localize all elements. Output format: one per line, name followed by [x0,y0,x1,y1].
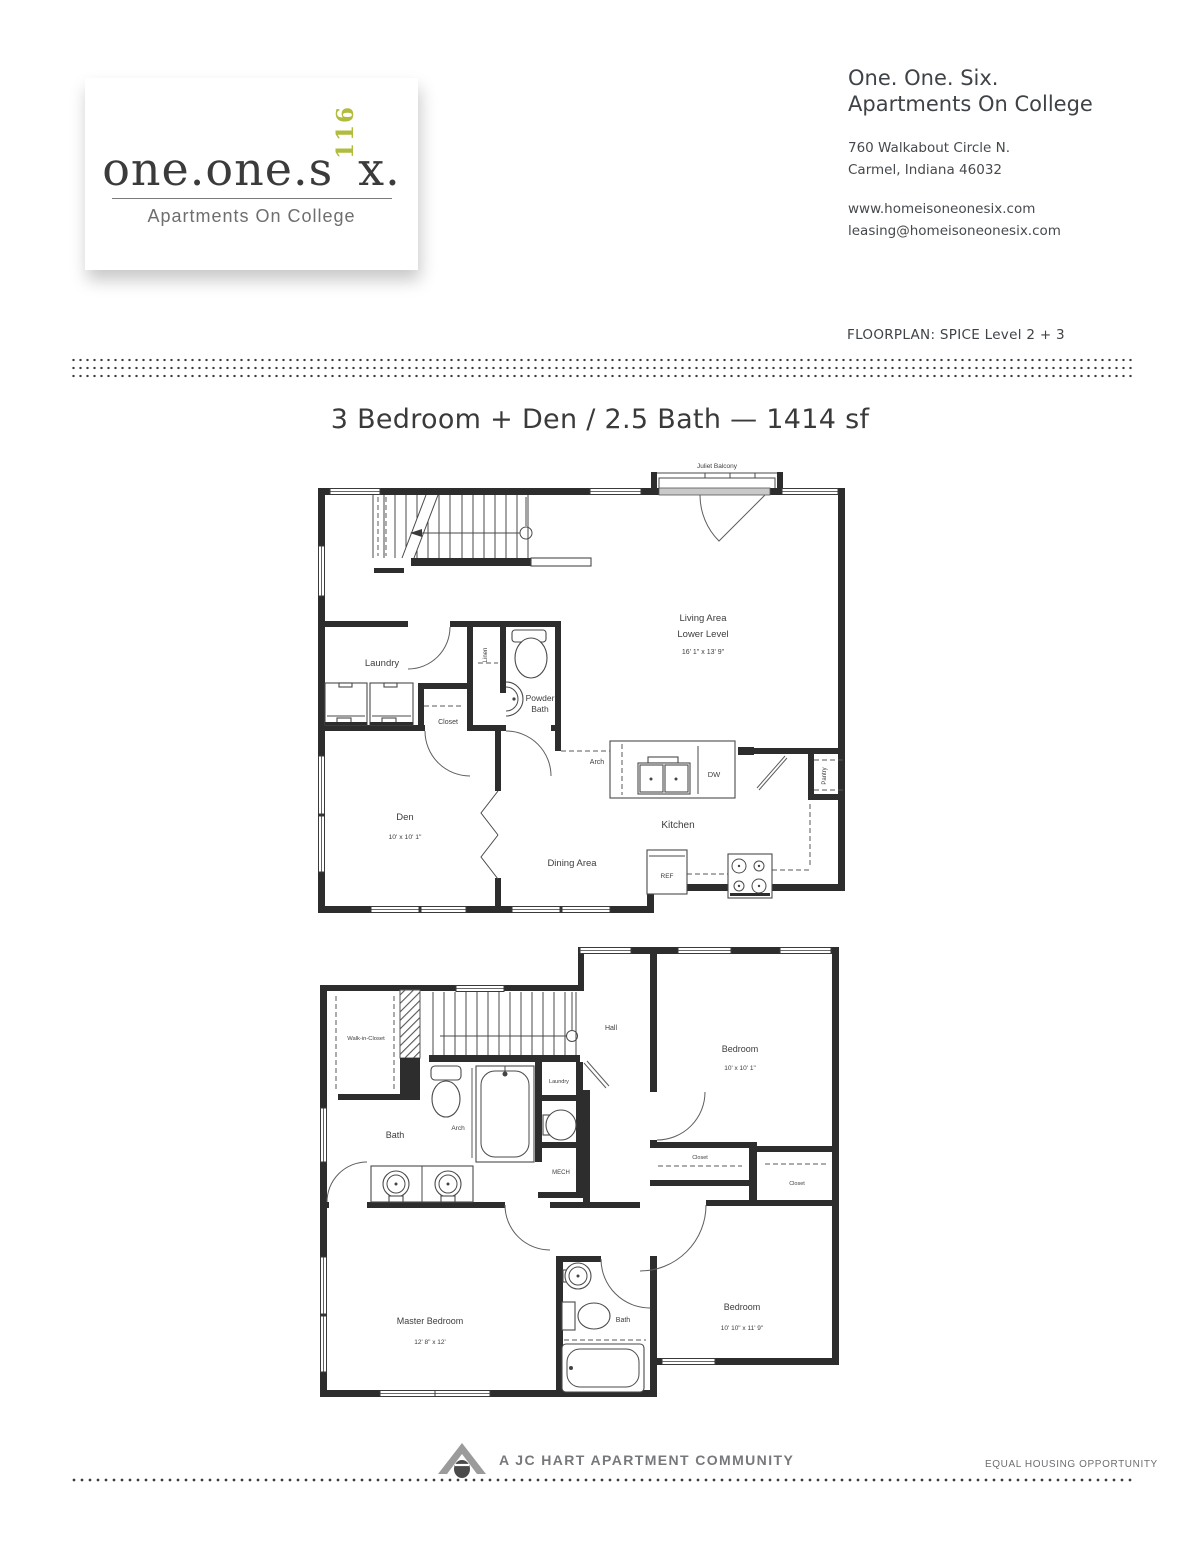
label-master-dim: 12' 8" x 12' [414,1339,446,1346]
label-den: Den [396,812,413,823]
label-pantry: Pantry [822,767,828,784]
hall-bath-fixtures [562,1263,646,1392]
label-laundry3: Laundry [549,1079,569,1085]
label-bedroom1: Bedroom [722,1044,759,1054]
label-kitchen: Kitchen [661,820,694,831]
logo-wordmark: one.one.s116x. [102,121,401,192]
label-closet: Closet [438,719,458,726]
label-closet2: Closet [789,1181,805,1187]
label-powder-2: Bath [531,704,549,714]
label-living-area: Living Area [679,613,727,624]
label-ref: REF [661,873,674,880]
label-living-dim: 16' 1" x 13' 9" [682,649,725,656]
property-address: 760 Walkabout Circle N. Carmel, Indiana … [848,138,1093,181]
level3-stairs [429,992,580,1062]
washer-dryer [325,683,413,725]
address-line1: 760 Walkabout Circle N. [848,138,1093,160]
dotted-separator-top [70,354,1132,380]
label-bath: Bath [386,1130,405,1140]
label-arch: Arch [590,759,605,766]
balcony-door-swing [700,495,765,541]
floorplan-sheet: one.one.s116x. Apartments On College One… [0,0,1200,1553]
jc-hart-house-icon [437,1436,487,1482]
label-bedroom2: Bedroom [724,1302,761,1312]
label-master: Master Bedroom [397,1316,464,1326]
label-closet1: Closet [692,1155,708,1161]
logo-word-end: x. [358,146,401,192]
label-mech: MECH [552,1170,570,1176]
juliet-balcony-rail [651,472,783,490]
footer-community-text: A JC HART APARTMENT COMMUNITY [499,1452,794,1468]
dotted-separator-bottom [70,1477,1132,1483]
property-contacts: www.homeisoneonesix.com leasing@homeison… [848,199,1093,242]
property-name-line1: One. One. Six. [848,66,1093,92]
label-dining: Dining Area [547,858,597,869]
label-powder-1: Powder [526,693,555,703]
plan-title: 3 Bedroom + Den / 2.5 Bath — 1414 sf [0,404,1200,435]
label-hall: Hall [605,1025,618,1032]
website-text: www.homeisoneonesix.com [848,199,1093,221]
walk-in-closet [336,990,420,1100]
logo-word-start: one.one.s [102,146,333,192]
floorplan-level3: Walk-in-Closet Hall Bedroom 10' x 10' 1"… [310,940,870,1410]
property-header: One. One. Six. Apartments On College 760… [848,66,1093,243]
refrigerator [647,850,687,894]
label-arch3: Arch [451,1125,465,1132]
logo-card: one.one.s116x. Apartments On College [85,78,418,270]
balcony-door-sill [659,488,770,495]
label-linen: Linen [483,648,489,663]
footer-equal-housing-text: EQUAL HOUSING OPPORTUNITY [985,1459,1158,1470]
logo-underline [112,198,392,199]
logo-tagline: Apartments On College [147,206,355,227]
range-stove [728,854,772,898]
toilet-nook [543,1110,576,1140]
label-walk-in-closet: Walk-in-Closet [347,1036,385,1042]
logo-116-vertical: 116 [334,95,357,159]
level2-stairs [373,495,591,573]
floorplan-level2: Juliet Balcony Living Area Lower Level 1… [310,458,850,918]
den-opening-chevrons [481,791,498,879]
address-line2: Carmel, Indiana 46032 [848,160,1093,182]
label-bedroom2-dim: 10' 10" x 11' 9" [721,1325,764,1332]
email-text: leasing@homeisoneonesix.com [848,221,1093,243]
label-den-dim: 10' x 10' 1" [389,834,423,841]
label-juliet-balcony: Juliet Balcony [697,463,738,470]
label-dw: DW [708,770,721,779]
property-name: One. One. Six. Apartments On College [848,66,1093,117]
label-bath2: Bath [616,1317,631,1324]
property-name-line2: Apartments On College [848,92,1093,118]
label-laundry: Laundry [365,658,400,669]
floorplan-label: FLOORPLAN: SPICE Level 2 + 3 [847,327,1065,343]
label-lower-level: Lower Level [677,629,728,640]
label-bedroom1-dim: 10' x 10' 1" [724,1065,756,1072]
